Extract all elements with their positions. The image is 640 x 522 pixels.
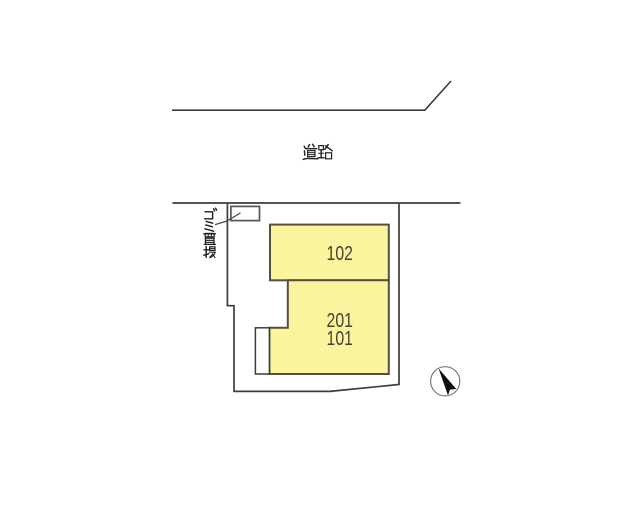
svg-text:102: 102 (327, 241, 353, 265)
svg-text:101: 101 (327, 326, 353, 350)
